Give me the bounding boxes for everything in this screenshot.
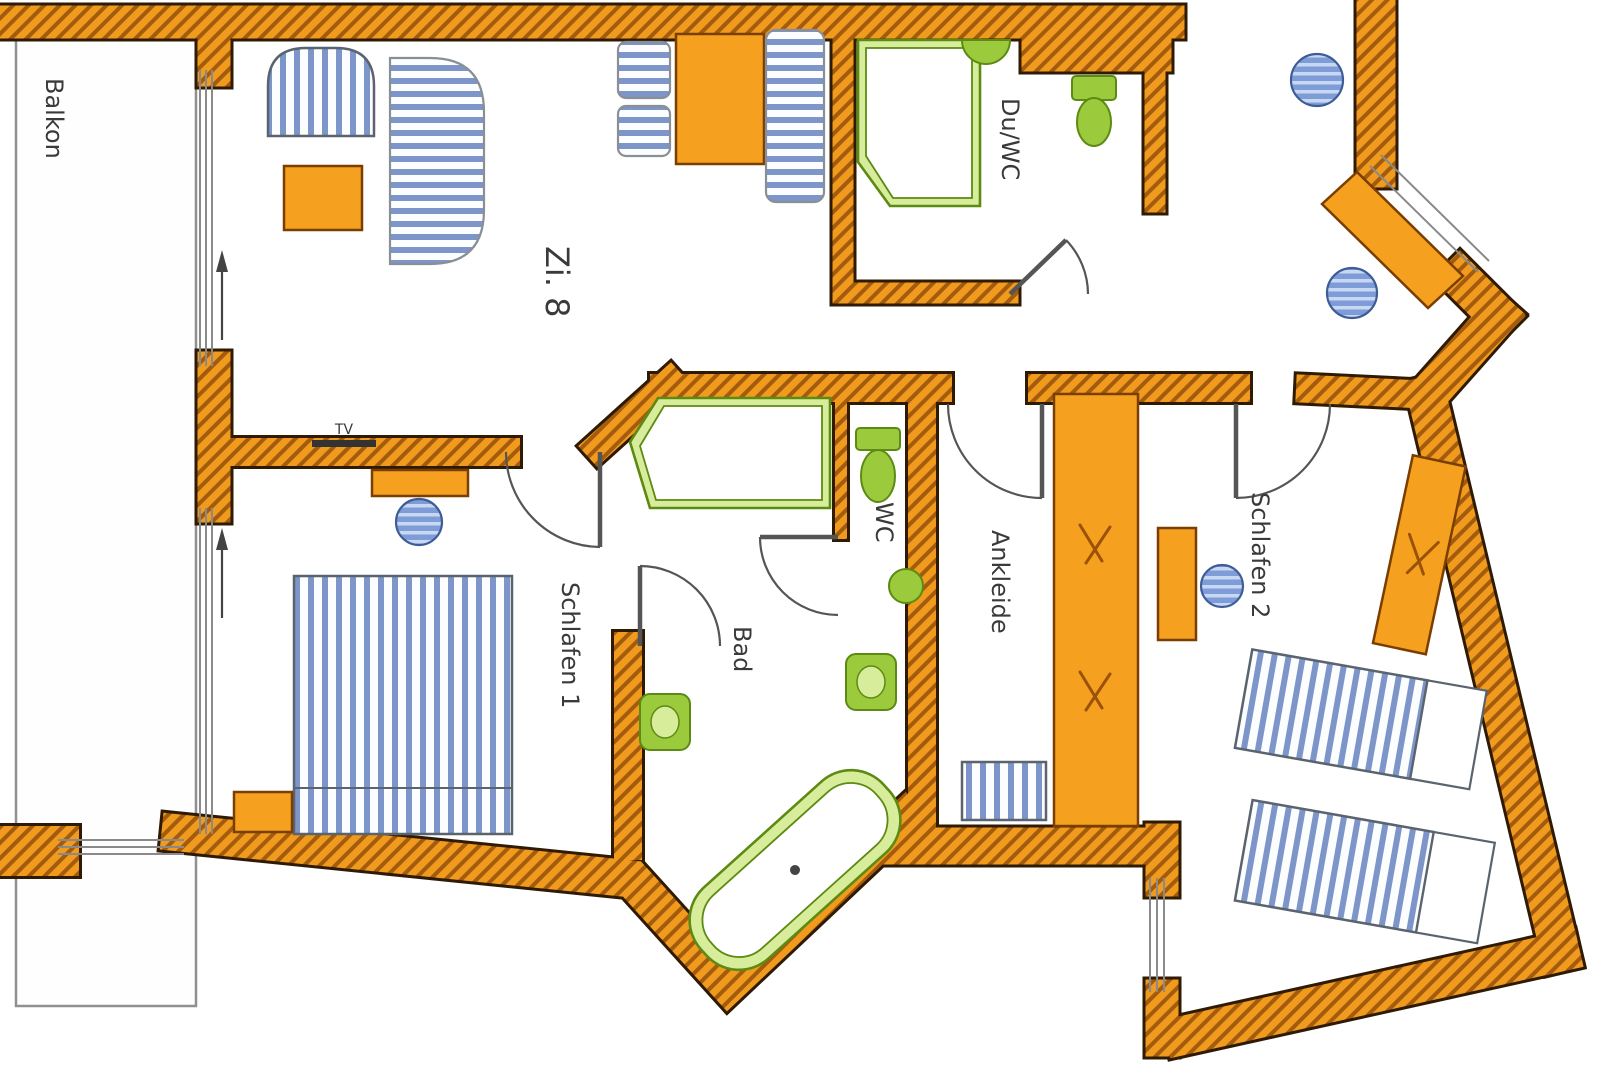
room-label-schlafen1: Schlafen 1 [556, 582, 584, 708]
nightstand [234, 792, 292, 832]
bathtub [671, 752, 918, 988]
toilet-wc [856, 428, 900, 502]
ceiling-lamp [396, 499, 442, 545]
entry-lamp [1327, 268, 1377, 318]
shower-duwc [858, 40, 980, 206]
dining-chair [618, 106, 670, 156]
door-wc [760, 537, 838, 615]
room-label-bad: Bad [728, 626, 756, 672]
single-bed-1 [1235, 649, 1487, 789]
dining-table [676, 34, 764, 164]
floorplan-drawing: Balkon Zi. 8 Du/WC Schlafen 1 Bad WC Ank… [0, 0, 1600, 1086]
door-ankleide [948, 404, 1042, 498]
door-schlafen2 [1236, 404, 1330, 498]
shower-bad [630, 398, 830, 508]
entry-lamp [1291, 54, 1343, 106]
desk [1158, 528, 1196, 640]
washbasin-bad-right [846, 654, 896, 710]
door-duwc [1010, 240, 1088, 294]
room-label-schlafen2: Schlafen 2 [1246, 492, 1274, 618]
radiator-ankleide [962, 762, 1046, 820]
dining-bench [766, 30, 824, 202]
tv-label: TV [334, 422, 354, 438]
room-label-balkon: Balkon [40, 78, 68, 159]
tv-shelf [372, 470, 468, 496]
door-bad [640, 566, 720, 646]
floorplan-page: Balkon Zi. 8 Du/WC Schlafen 1 Bad WC Ank… [0, 0, 1600, 1086]
armchair [268, 48, 374, 136]
room-label-wc: WC [870, 502, 898, 543]
room-label-ankleide: Ankleide [986, 530, 1014, 634]
toilet-duwc [1072, 76, 1116, 146]
double-bed [294, 576, 512, 834]
room-label-zi8: Zi. 8 [538, 246, 576, 318]
washbasin-bad-left [640, 694, 690, 750]
single-bed-2 [1235, 800, 1495, 943]
room-label-duwc: Du/WC [996, 98, 1024, 180]
coffee-table [284, 166, 362, 230]
sofa [390, 58, 484, 264]
desk-stool [1201, 565, 1243, 607]
wardrobe-ankleide [1054, 394, 1138, 826]
washbasin-wc [889, 569, 923, 603]
tv-panel [312, 440, 376, 447]
dining-chair [618, 42, 670, 98]
